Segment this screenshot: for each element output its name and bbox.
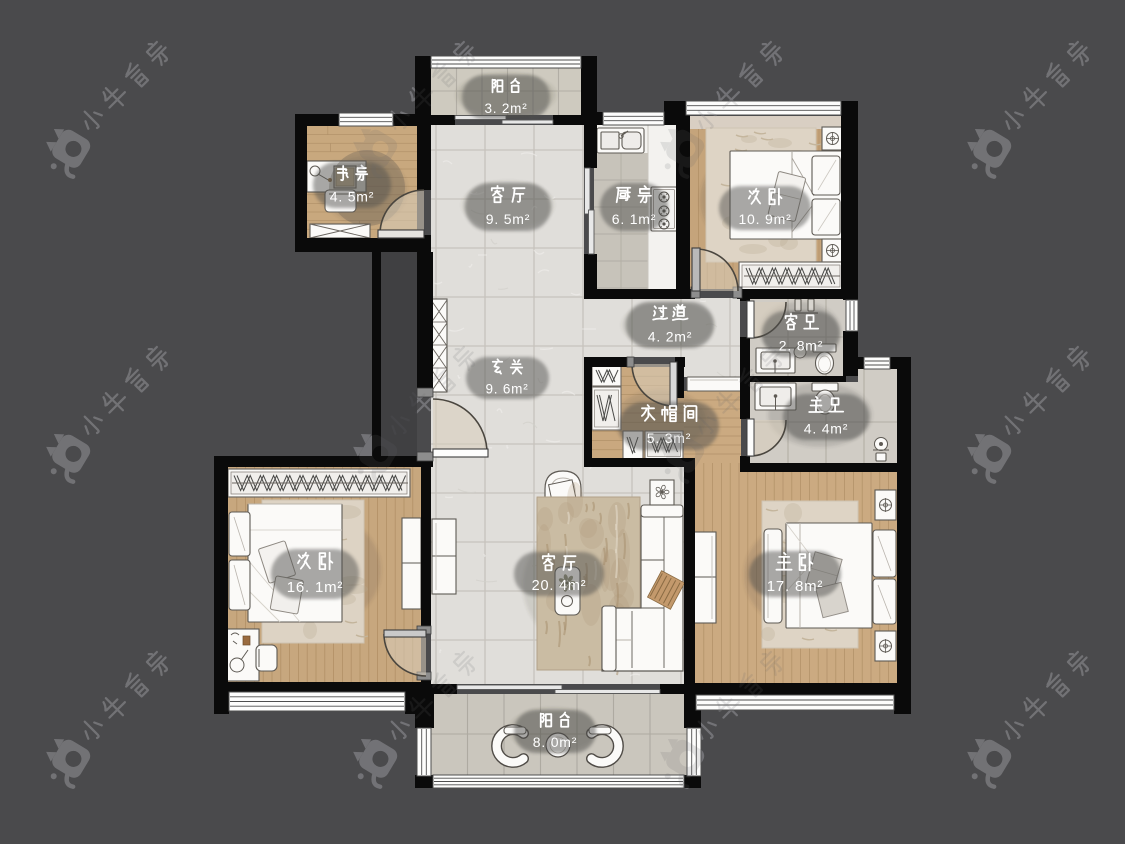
svg-text:2. 8m²: 2. 8m²	[779, 338, 823, 354]
svg-text:9. 6m²: 9. 6m²	[485, 381, 528, 396]
svg-text:3. 2m²: 3. 2m²	[484, 101, 527, 116]
svg-text:4. 4m²: 4. 4m²	[804, 421, 848, 437]
svg-text:10. 9m²: 10. 9m²	[738, 211, 791, 227]
svg-text:6. 1m²: 6. 1m²	[612, 211, 656, 227]
svg-text:8. 0m²: 8. 0m²	[533, 734, 577, 750]
svg-text:20. 4m²: 20. 4m²	[532, 578, 587, 594]
svg-text:4. 5m²: 4. 5m²	[330, 189, 374, 205]
svg-text:16. 1m²: 16. 1m²	[287, 579, 343, 596]
svg-text:4. 2m²: 4. 2m²	[648, 329, 692, 345]
svg-text:9. 5m²: 9. 5m²	[486, 211, 530, 227]
svg-text:17. 8m²: 17. 8m²	[767, 578, 823, 595]
